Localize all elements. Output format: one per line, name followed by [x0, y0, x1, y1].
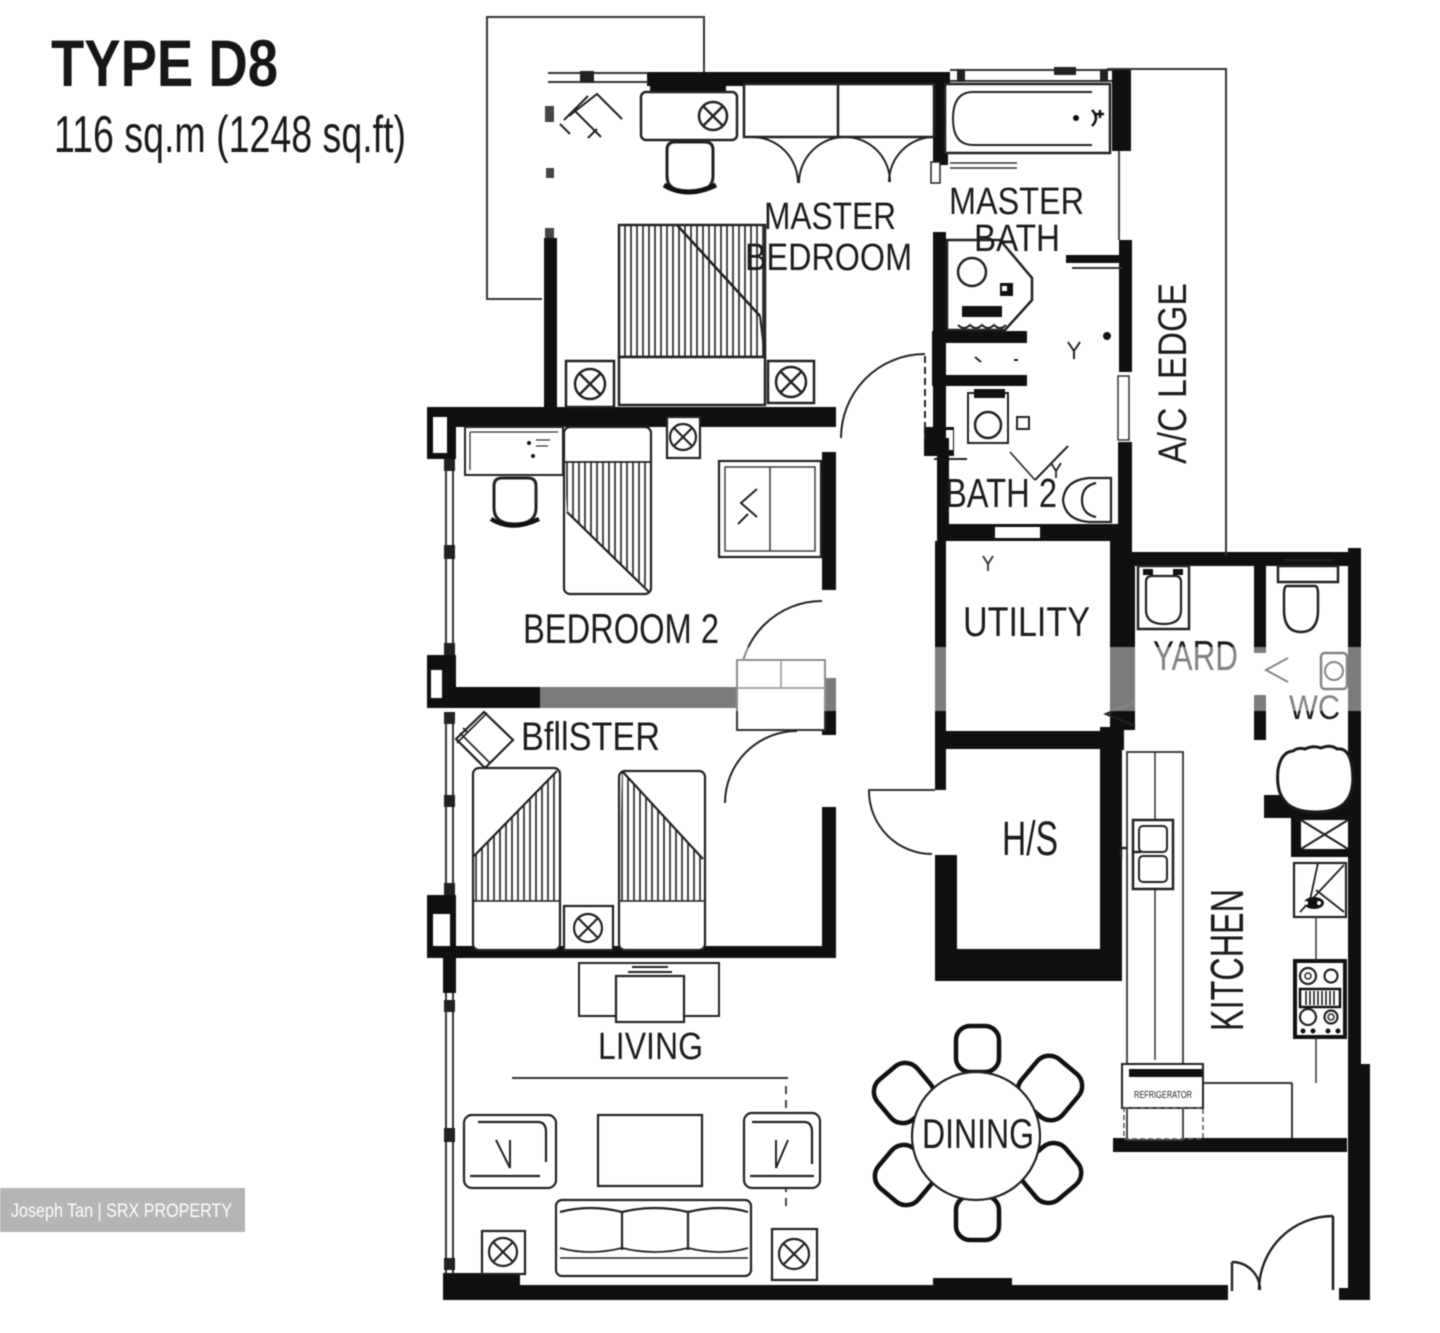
svg-text:UTILITY: UTILITY: [963, 598, 1090, 645]
svg-text:116 sq.m (1248 sq.ft): 116 sq.m (1248 sq.ft): [54, 106, 406, 164]
svg-text:DINING: DINING: [922, 1110, 1034, 1157]
svg-text:LIVING: LIVING: [598, 1026, 703, 1068]
svg-text:BEDROOM: BEDROOM: [745, 237, 912, 279]
svg-text:A/C LEDGE: A/C LEDGE: [1151, 283, 1195, 464]
svg-text:BATH: BATH: [974, 218, 1060, 260]
svg-text:KITCHEN: KITCHEN: [1201, 889, 1253, 1031]
svg-text:TYPE D8: TYPE D8: [51, 26, 278, 100]
svg-text:MASTER: MASTER: [949, 181, 1084, 223]
svg-text:Joseph Tan | SRX PROPERTY: Joseph Tan | SRX PROPERTY: [11, 1201, 232, 1222]
svg-text:BfllSTER: BfllSTER: [521, 715, 660, 759]
svg-text:H/S: H/S: [1002, 813, 1058, 866]
svg-text:MASTER: MASTER: [764, 196, 896, 238]
svg-text:BEDROOM 2: BEDROOM 2: [523, 605, 719, 652]
svg-text:BATH 2: BATH 2: [945, 470, 1057, 516]
svg-text:REFRIGERATOR: REFRIGERATOR: [1134, 1090, 1192, 1101]
